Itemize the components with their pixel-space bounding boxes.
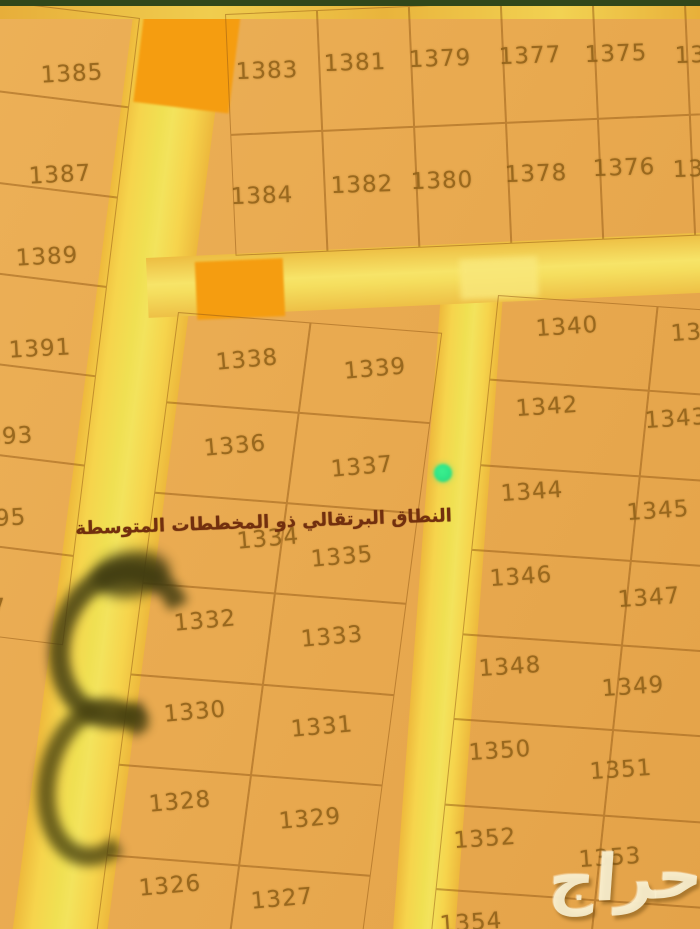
parcel-number: 1383	[222, 55, 313, 86]
location-marker-dot	[434, 464, 452, 482]
parcel-number: 1381	[310, 47, 401, 78]
parcel-number: 1379	[395, 43, 486, 74]
parcel-number: 1395	[0, 503, 41, 536]
parcel-number: 1374	[659, 153, 700, 184]
parcel-cell	[0, 0, 140, 108]
watermark-logo: حراج	[515, 839, 700, 920]
parcel-number: 1397	[0, 593, 21, 626]
street-light-patch	[459, 256, 539, 299]
parcel-number: 1345	[612, 494, 700, 528]
parcel-number: 1382	[317, 169, 408, 200]
parcel-number: 1377	[485, 40, 576, 71]
parcel-number: 1341	[656, 315, 700, 349]
parcel-number: 1393	[0, 421, 48, 454]
parcel-cell	[489, 295, 658, 391]
parcel-number: 1384	[217, 180, 308, 211]
parcel-number: 1387	[14, 159, 105, 192]
parcel-number: 1385	[26, 58, 117, 91]
parcel-number: 1378	[491, 158, 582, 189]
parcel-number: 1375	[571, 38, 662, 69]
orange-zone-block-mid	[195, 258, 285, 320]
parcel-number: 1376	[579, 152, 670, 183]
parcel-number: 1380	[397, 165, 488, 196]
parcel-number: 1343	[630, 402, 700, 436]
top-green-strip	[0, 0, 700, 6]
parcel-block-lattice-2	[225, 0, 700, 256]
parcel-number: 1389	[1, 241, 92, 274]
parcel-map: 1385138713891391139313951397138313811379…	[0, 0, 700, 929]
parcel-number: 1373	[661, 39, 700, 70]
parcel-number: 1391	[0, 333, 86, 366]
